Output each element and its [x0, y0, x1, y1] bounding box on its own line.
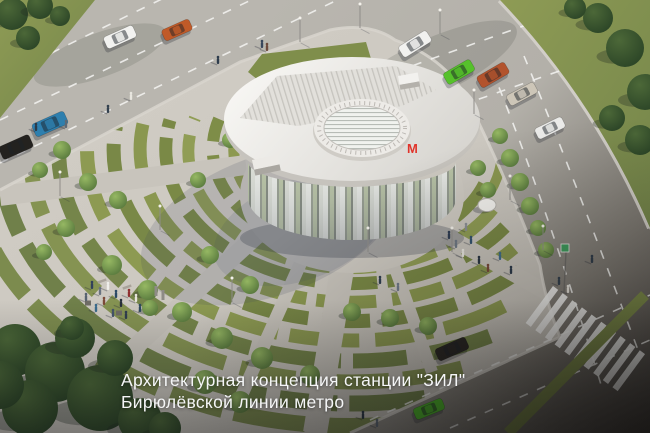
scene-svg: М [0, 0, 650, 433]
caption: Архитектурная концепция станции "ЗИЛ" Би… [121, 370, 465, 413]
caption-line-1: Архитектурная концепция станции "ЗИЛ" [121, 370, 465, 392]
corner-vignette [0, 0, 650, 433]
aerial-render: М Архитектурная концепция станции "ЗИЛ" … [0, 0, 650, 433]
caption-line-2: Бирюлёвской линии метро [121, 392, 465, 414]
